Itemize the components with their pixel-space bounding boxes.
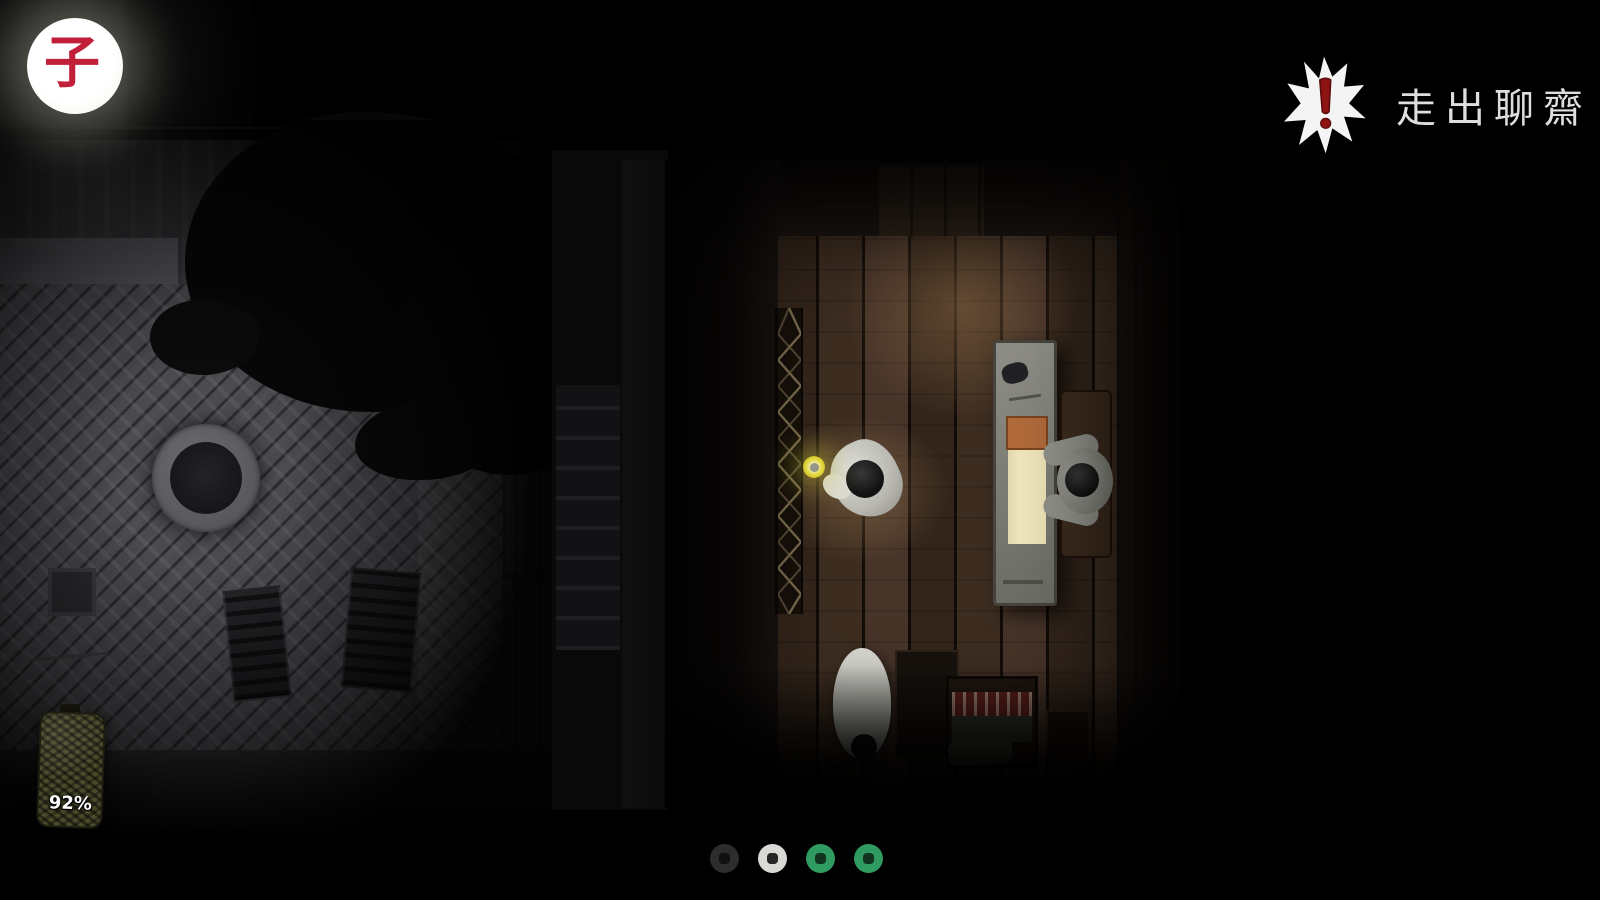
battery-percent-label: 92% — [48, 792, 92, 814]
passage-door[interactable] — [556, 385, 620, 650]
page-dot-4[interactable] — [854, 844, 883, 873]
inventory-battery-item[interactable]: 92% — [36, 711, 106, 829]
game-viewport: 子 走出聊齋 92% — [0, 0, 1600, 900]
candle-holder — [810, 463, 819, 472]
courtyard-wall-rail — [503, 574, 553, 578]
room-north-door[interactable] — [876, 165, 984, 236]
page-dot-2[interactable] — [758, 844, 787, 873]
page-dot-1[interactable] — [710, 844, 739, 873]
passage-door-frame — [622, 160, 668, 808]
page-dot-hole — [863, 853, 874, 864]
page-dot-hole — [815, 853, 826, 864]
moon-time-indicator: 子 — [27, 18, 123, 114]
standing-character-head — [846, 460, 884, 498]
desk-ruler — [1003, 580, 1043, 584]
exclamation-mark — [1320, 78, 1331, 113]
time-character: 子 — [44, 36, 100, 92]
lattice-screen[interactable] — [775, 308, 803, 614]
lattice-pattern — [778, 308, 801, 614]
study-room — [665, 160, 1182, 808]
page-dot-hole — [719, 853, 730, 864]
game-title: 走出聊齋 — [1396, 76, 1592, 134]
stone-chair[interactable] — [222, 585, 291, 702]
page-dot-hole — [767, 853, 778, 864]
page-dot-3[interactable] — [806, 844, 835, 873]
scroll-paper[interactable] — [1008, 450, 1046, 544]
stone-chair[interactable] — [341, 567, 421, 693]
alert-star-icon[interactable] — [1280, 55, 1368, 155]
seated-character-head — [1065, 463, 1099, 497]
room-shadow-fade — [665, 665, 1182, 808]
stone-drain[interactable] — [48, 568, 96, 616]
game-title-block: 走出聊齋 — [1280, 50, 1592, 160]
scroll-roller[interactable] — [1006, 416, 1048, 450]
page-indicator — [710, 842, 883, 874]
well-opening — [170, 442, 242, 514]
